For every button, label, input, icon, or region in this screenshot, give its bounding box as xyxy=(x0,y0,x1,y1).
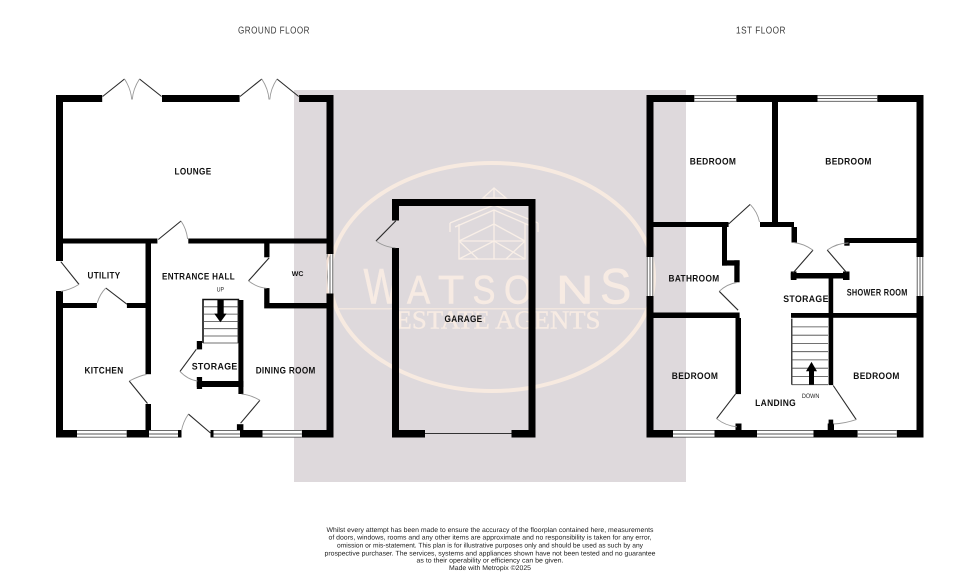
svg-text:Made with Metropix ©2025: Made with Metropix ©2025 xyxy=(449,565,531,572)
svg-text:BATHROOM: BATHROOM xyxy=(669,274,720,285)
svg-text:Whilst every attempt has been: Whilst every attempt has been made to en… xyxy=(327,527,655,534)
svg-text:as to their operability or eff: as to their operability or efficiency ca… xyxy=(417,557,564,564)
svg-text:LOUNGE: LOUNGE xyxy=(175,166,212,177)
svg-text:DOWN: DOWN xyxy=(802,393,820,400)
svg-text:ESTATE AGENTS: ESTATE AGENTS xyxy=(396,306,601,335)
svg-text:BEDROOM: BEDROOM xyxy=(853,371,900,382)
svg-text:ENTRANCE HALL: ENTRANCE HALL xyxy=(162,272,235,283)
svg-text:GARAGE: GARAGE xyxy=(445,314,483,325)
svg-text:KITCHEN: KITCHEN xyxy=(85,365,124,376)
svg-text:GROUND FLOOR: GROUND FLOOR xyxy=(238,26,310,37)
svg-text:SHOWER ROOM: SHOWER ROOM xyxy=(847,288,908,299)
svg-text:S: S xyxy=(600,259,631,315)
svg-text:of doors, windows, rooms and a: of doors, windows, rooms and any other i… xyxy=(329,535,652,542)
svg-text:UTILITY: UTILITY xyxy=(88,271,121,282)
svg-text:1ST FLOOR: 1ST FLOOR xyxy=(736,26,786,37)
svg-text:UP: UP xyxy=(217,287,225,294)
svg-text:BEDROOM: BEDROOM xyxy=(690,157,737,168)
svg-text:STORAGE: STORAGE xyxy=(783,294,829,305)
svg-text:DINING ROOM: DINING ROOM xyxy=(256,365,316,376)
svg-text:BEDROOM: BEDROOM xyxy=(672,371,719,382)
svg-text:WC: WC xyxy=(292,271,304,278)
svg-text:omission or mis-statement. Thi: omission or mis-statement. This plan is … xyxy=(337,543,644,550)
svg-text:STORAGE: STORAGE xyxy=(192,361,238,372)
svg-text:BEDROOM: BEDROOM xyxy=(825,157,872,168)
svg-text:LANDING: LANDING xyxy=(755,398,796,409)
